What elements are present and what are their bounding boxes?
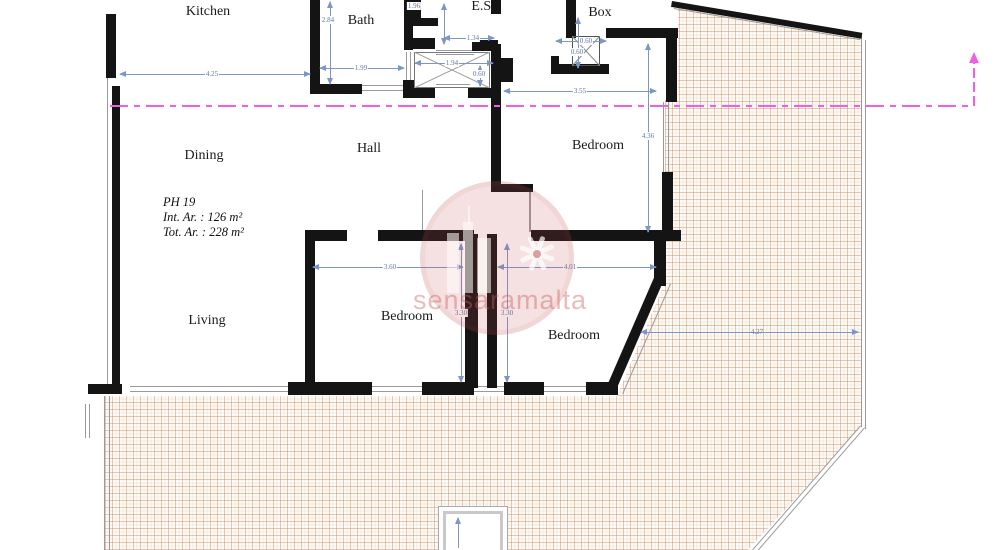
parapet-line (861, 36, 862, 427)
dimension-label: 2.84 (321, 16, 335, 24)
dimension-label: 3.60 (383, 263, 397, 271)
section-line (110, 105, 974, 107)
dimension-label: 4.27 (750, 328, 764, 336)
wall-bath-bottom (310, 84, 362, 94)
window-line (372, 386, 422, 387)
wall-bath-left (310, 0, 320, 94)
wall-south-segment (288, 382, 372, 395)
es-door-line (410, 52, 411, 80)
unit-id: PH 19 (163, 195, 244, 210)
dimension-line (444, 4, 445, 44)
room-label-hall: Hall (357, 141, 381, 157)
terrace-edge-line (85, 404, 86, 438)
wall-central-main (491, 44, 501, 192)
window-line (544, 391, 586, 392)
watermark-flagpole (468, 206, 470, 224)
section-line-vertical (973, 62, 975, 106)
room-label-bedroom-se: Bedroom (548, 328, 600, 344)
dimension-label: 3.55 (573, 87, 587, 95)
window-line (544, 386, 586, 387)
wall-bedroom-s-left (305, 230, 315, 388)
dimension-label: 0.60 (570, 48, 584, 56)
terrace-edge-line (104, 396, 105, 550)
room-label-box: Box (588, 5, 611, 21)
watermark-tower (463, 222, 473, 293)
watermark-tower (447, 233, 459, 293)
wall-bedroom-s-top-left (305, 230, 347, 241)
wall-stair-bottom-left (403, 88, 435, 98)
room-label-dining: Dining (185, 148, 224, 164)
terrace-edge-line (109, 396, 110, 550)
stair-tread-line (436, 50, 474, 51)
window-line (474, 391, 504, 392)
room-label-living: Living (188, 313, 225, 329)
dimension-label: 4.36 (641, 132, 655, 140)
unit-info-block: PH 19 Int. Ar. : 126 m² Tot. Ar. : 228 m… (163, 195, 244, 240)
planter-arrow (458, 518, 459, 548)
wall-bedroom-ne-right (662, 172, 673, 232)
bath-door-line (362, 85, 406, 86)
terrace-planter (438, 506, 508, 550)
room-label-bath: Bath (348, 13, 374, 29)
terrace-edge-line (89, 404, 90, 438)
window-line (663, 102, 664, 174)
room-label-bedroom-ne: Bedroom (572, 138, 624, 154)
dimension-label: 1.96 (407, 2, 421, 10)
wall-south-segment (422, 382, 474, 395)
wall-left-foot (88, 384, 122, 394)
dimension-label: 1.94 (445, 59, 459, 67)
dimension-line (330, 2, 331, 84)
unit-tot-area: Tot. Ar. : 228 m² (163, 225, 244, 240)
dimension-label: 0.60 (579, 37, 593, 45)
terrace-planter-inner (443, 511, 503, 550)
wall-es-arm (412, 18, 438, 26)
parapet-line (865, 40, 866, 429)
room-label-es: E.S. (471, 0, 494, 15)
floor-plan: 4.25 1.99 2.84 1.96 1.34 1.94 0.60 0.60 … (0, 0, 1000, 550)
windmill-hub (533, 250, 541, 258)
wall-kitchen-left (106, 14, 116, 78)
wall-stair-top-left (413, 38, 435, 49)
bath-door-line (362, 90, 406, 91)
dimension-label: 4.25 (205, 70, 219, 78)
window-line (130, 386, 288, 387)
dimension-label: 1.99 (354, 64, 368, 72)
window-line (130, 391, 288, 392)
dimension-label: 0.60 (472, 70, 486, 78)
dimension-label: 1.34 (466, 34, 480, 42)
es-door-line (406, 52, 407, 80)
window-line (668, 102, 669, 174)
wall-hall-jamb (501, 58, 513, 82)
unit-int-area: Int. Ar. : 126 m² (163, 210, 244, 225)
wall-left-main (112, 86, 120, 388)
wall-east-top (666, 28, 677, 102)
section-arrow-icon (969, 52, 979, 63)
wall-south-segment (504, 382, 544, 395)
wall-line (422, 190, 423, 232)
watermark-text: sensaramalta (398, 285, 602, 316)
room-label-kitchen: Kitchen (186, 4, 230, 20)
window-line (372, 391, 422, 392)
